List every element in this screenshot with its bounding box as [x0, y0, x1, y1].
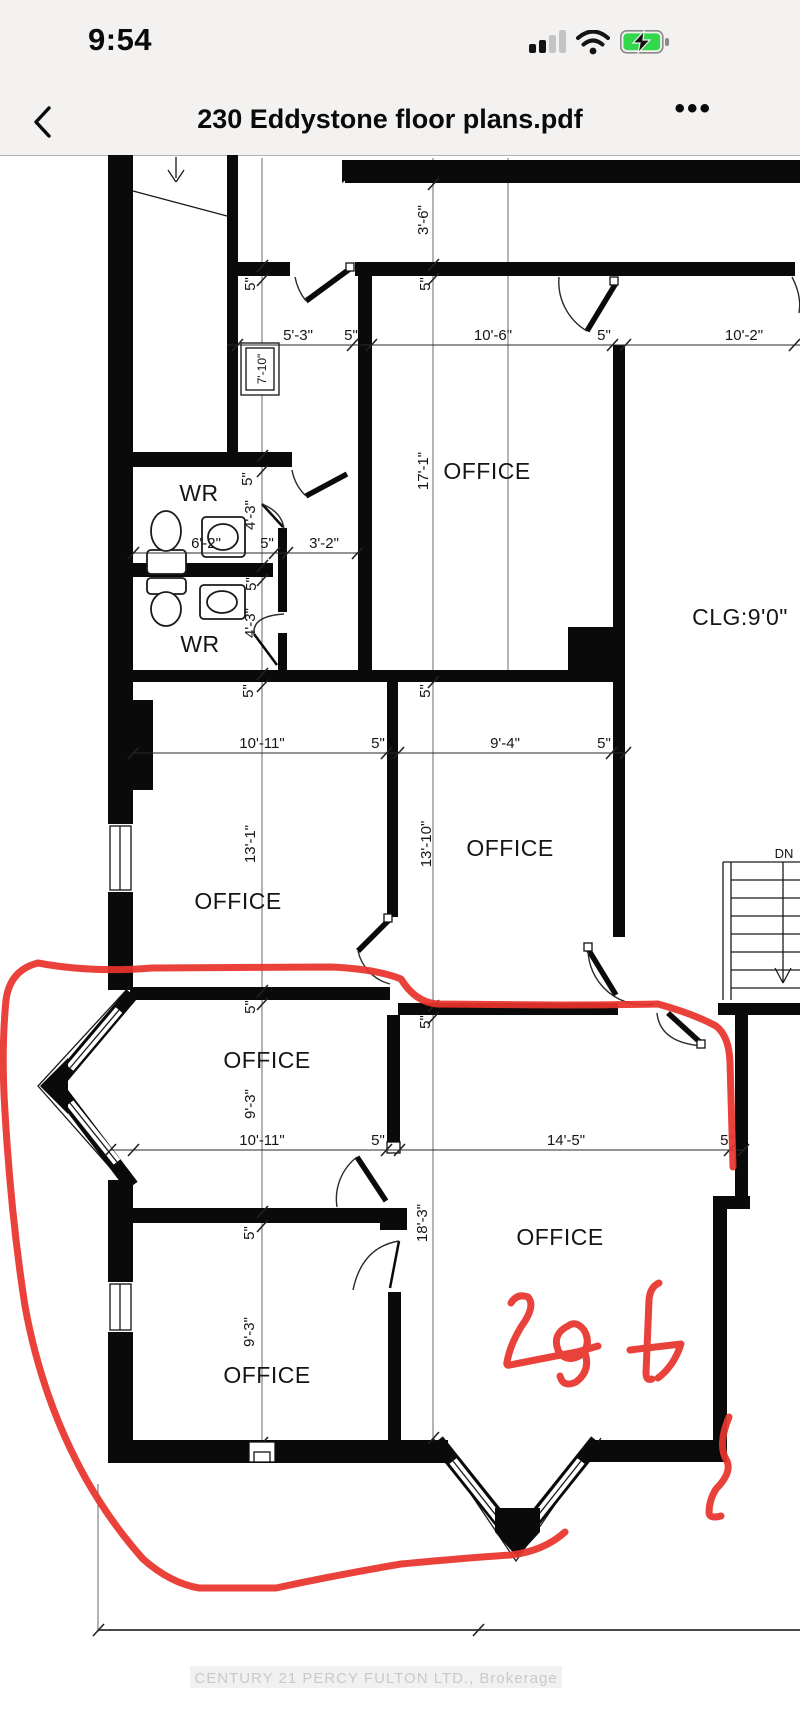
status-icons — [529, 26, 670, 58]
room-label-office: OFFICE — [516, 1224, 603, 1250]
bay-window-bottom — [433, 1438, 601, 1561]
dim-label: 5" — [241, 1226, 258, 1240]
wifi-icon — [576, 30, 610, 55]
watermark-text: CENTURY 21 PERCY FULTON LTD., Brokerage — [194, 1670, 557, 1687]
toilet-icon — [147, 511, 186, 574]
watermark: CENTURY 21 PERCY FULTON LTD., Brokerage — [190, 1666, 562, 1688]
battery-charging-icon — [620, 30, 670, 54]
dim-label: 14'-5" — [547, 1132, 585, 1149]
walls — [108, 155, 800, 1463]
dim-label: 5" — [371, 1132, 385, 1149]
dim-label: 3'-6" — [415, 205, 432, 235]
dim-label: 5" — [242, 1000, 259, 1014]
room-label-wr: WR — [179, 480, 218, 506]
bay-window-left — [38, 986, 132, 1190]
dim-label: 10'-6" — [474, 327, 512, 344]
cellular-signal-icon — [529, 30, 566, 54]
dim-label: 17'-1" — [415, 452, 432, 490]
toilet-icon — [147, 578, 186, 626]
sink-icon — [200, 585, 245, 619]
room-label-office: OFFICE — [443, 458, 530, 484]
dim-label: 5" — [242, 277, 259, 291]
dim-label: 5" — [240, 684, 257, 698]
room-labels: OFFICE WR WR CLG:9'0" OFFICE OFFICE OFFI… — [179, 458, 788, 1388]
dim-label: 5" — [417, 1015, 434, 1029]
dim-label: 7'-10" — [255, 354, 269, 385]
back-button[interactable] — [26, 104, 62, 140]
dim-label: 10'-11" — [239, 1132, 284, 1149]
window-left-lower — [110, 1284, 131, 1330]
dim-label: 4'-3" — [242, 608, 259, 638]
room-label-office: OFFICE — [223, 1047, 310, 1073]
room-label-wr: WR — [180, 631, 219, 657]
room-label-office: OFFICE — [194, 888, 281, 914]
dim-label: 5" — [243, 577, 260, 591]
threshold-fixture — [249, 1442, 275, 1462]
extension-lines — [98, 158, 508, 1632]
nav-bar: 230 Eddystone floor plans.pdf ••• — [0, 90, 800, 156]
dim-label: 5" — [417, 684, 434, 698]
window-left-upper — [110, 826, 131, 890]
dim-label: 5'-3" — [283, 327, 313, 344]
doors — [254, 263, 800, 1290]
chevron-left-icon — [26, 104, 62, 140]
dim-label: 9'-3" — [241, 1317, 258, 1347]
room-label-office: OFFICE — [223, 1362, 310, 1388]
stairs-upper-icon — [133, 157, 227, 216]
dim-label: 13'-1" — [242, 825, 259, 863]
dim-label: 5" — [371, 735, 385, 752]
dim-label: 3'-2" — [309, 535, 339, 552]
pdf-canvas[interactable]: DN 7'-10" — [0, 155, 800, 1732]
dim-label: 9'-3" — [242, 1089, 259, 1119]
ceiling-height-note: CLG:9'0" — [692, 604, 788, 630]
dim-label: 5" — [344, 327, 358, 344]
dim-label: 5" — [597, 735, 611, 752]
stairs-down-icon: DN — [723, 846, 800, 1000]
fixture-7-10: 7'-10" — [241, 343, 279, 395]
dim-label: 9'-4" — [490, 735, 520, 752]
dim-label: 10'-2" — [725, 327, 763, 344]
dim-label: 5" — [417, 277, 434, 291]
document-title: 230 Eddystone floor plans.pdf — [110, 104, 670, 135]
dim-label: 5" — [597, 327, 611, 344]
dim-label: 6'-2" — [191, 535, 221, 552]
status-bar: 9:54 — [0, 0, 800, 90]
pdf-viewer-screen: 9:54 — [0, 0, 800, 1732]
more-options-button[interactable]: ••• — [674, 92, 712, 126]
dim-label: 18'-3" — [414, 1204, 431, 1242]
stairs-dn-label: DN — [775, 846, 794, 861]
dim-label: 13'-10" — [418, 821, 435, 868]
handwriting-annotation — [507, 1283, 681, 1384]
dim-label: 5" — [260, 535, 274, 552]
dim-label: 5" — [239, 472, 256, 486]
dim-label: 4'-3" — [242, 500, 259, 530]
dim-label: 10'-11" — [239, 735, 284, 752]
clock: 9:54 — [88, 22, 152, 58]
room-label-office: OFFICE — [466, 835, 553, 861]
